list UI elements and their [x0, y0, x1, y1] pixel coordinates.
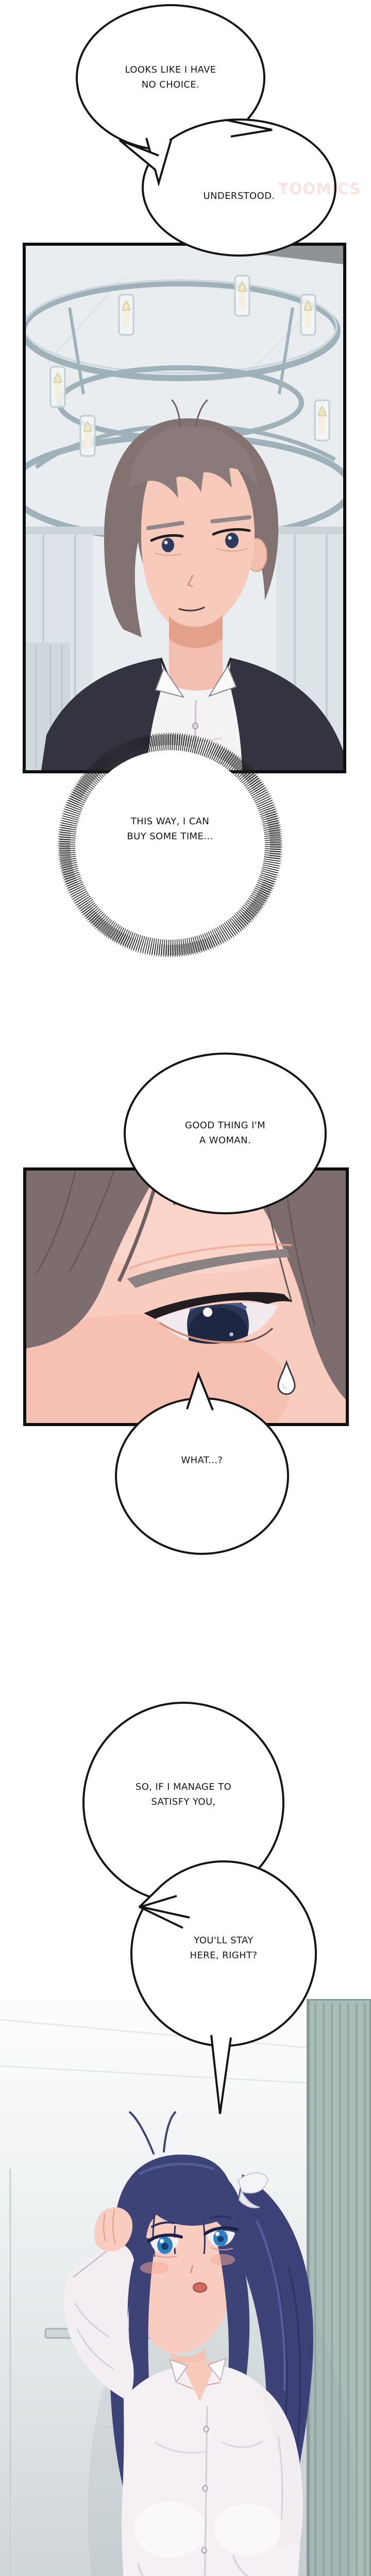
speech-text: WHAT...?: [181, 1453, 223, 1499]
speech-text: SO, IF I MANAGE TO SATISFY YOU,: [136, 1780, 231, 1825]
bubble-tail: [222, 116, 278, 147]
comic-page: LOOKS LIKE I HAVE NO CHOICE. UNDERSTOOD.: [0, 0, 371, 2576]
bubble-tail-long: [206, 2027, 237, 2120]
speech-text: YOU'LL STAY HERE, RIGHT?: [190, 1934, 258, 1974]
watermark-top: TOOMICS: [278, 180, 361, 198]
speech-text: GOOD THING I'M A WOMAN.: [185, 1118, 265, 1148]
speech-text: LOOKS LIKE I HAVE NO CHOICE.: [125, 63, 216, 93]
thought-text: THIS WAY, I CAN BUY SOME TIME...: [127, 815, 213, 844]
thought-bubble-buy-time: THIS WAY, I CAN BUY SOME TIME...: [98, 796, 242, 863]
bubble-tail: [139, 1896, 196, 1942]
speech-bubble-good-thing: GOOD THING I'M A WOMAN.: [124, 1053, 327, 1214]
panel-man-portrait: [23, 243, 346, 773]
speech-bubble-what: WHAT...?: [115, 1397, 289, 1555]
bubble-tail: [178, 1368, 224, 1417]
bubble-tail: [116, 135, 165, 174]
panel-woman-standing: [0, 1999, 371, 2576]
man-portrait-art: [26, 246, 343, 770]
speech-text: UNDERSTOOD.: [203, 172, 275, 204]
